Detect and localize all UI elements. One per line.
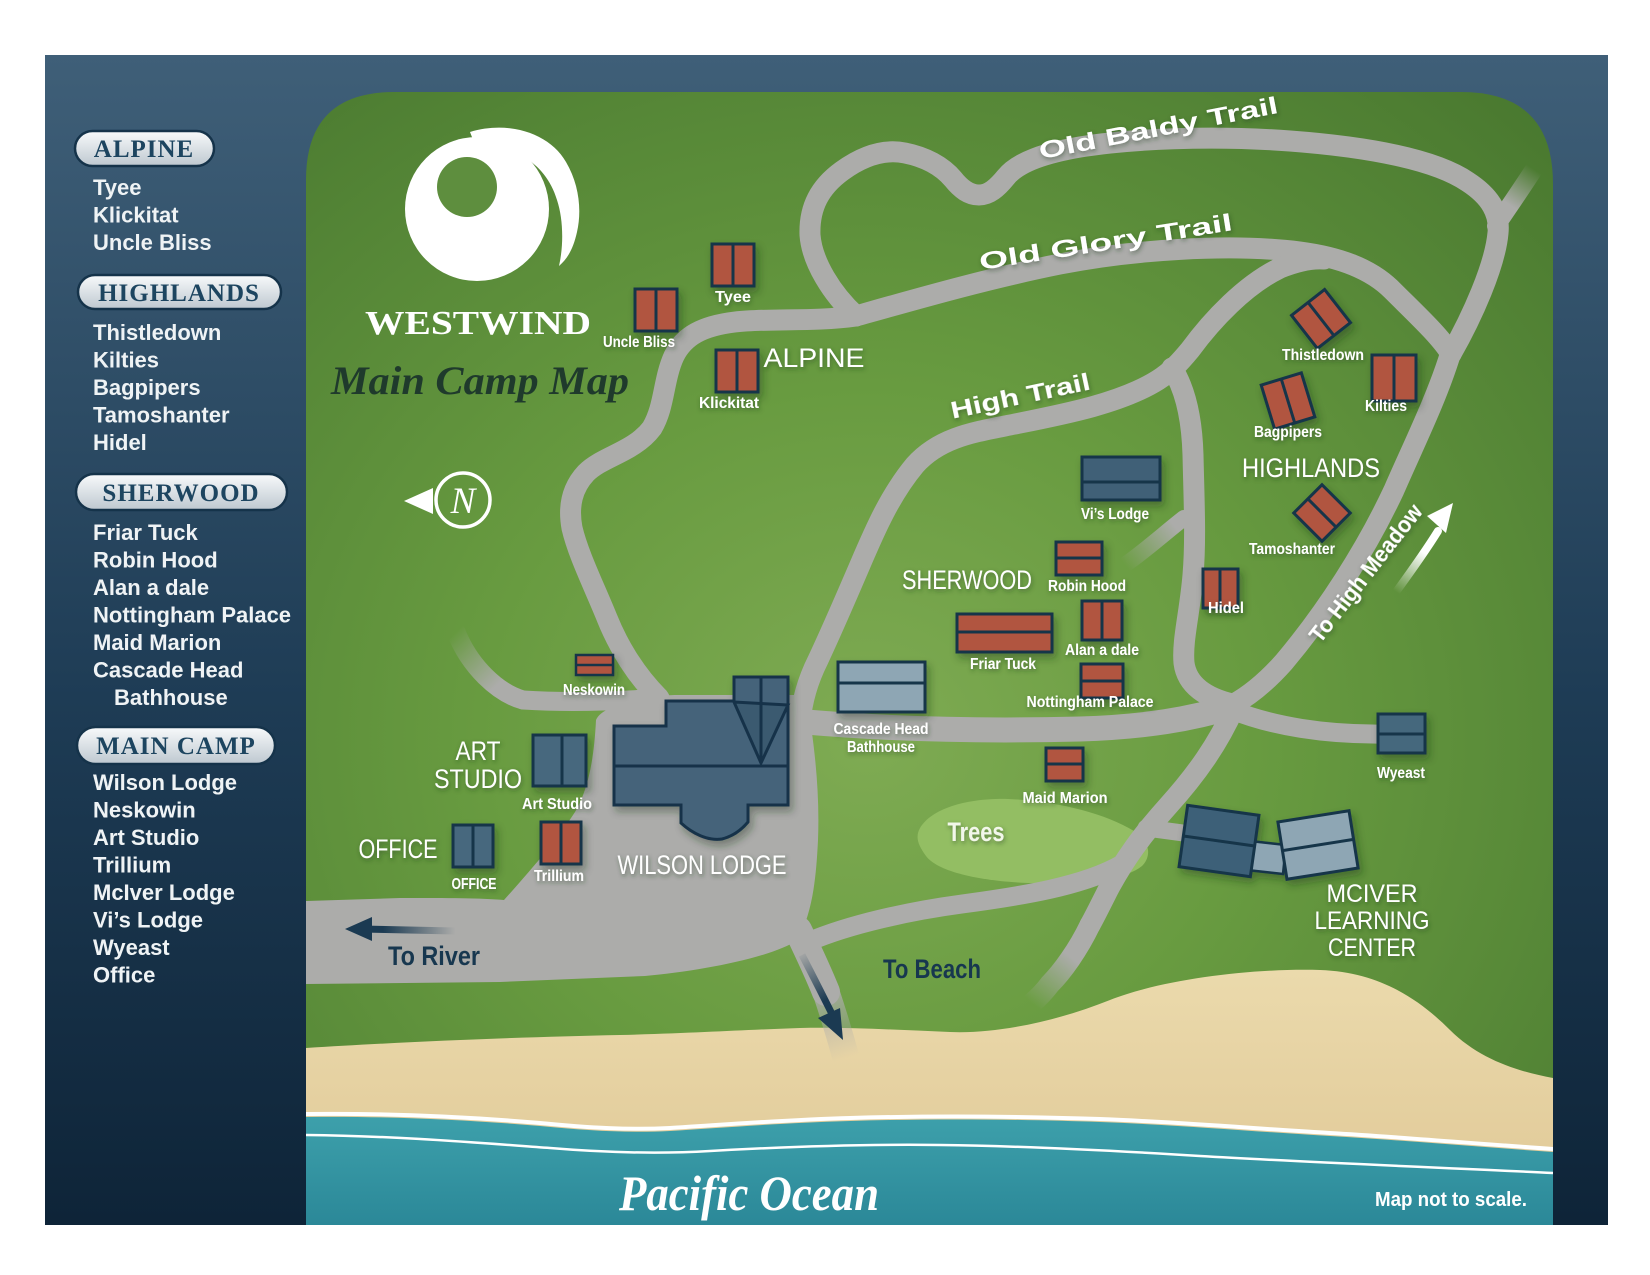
svg-text:OFFICE: OFFICE [452,876,497,893]
svg-text:Alan a dale: Alan a dale [1065,642,1139,659]
svg-text:MAIN CAMP: MAIN CAMP [96,733,256,760]
svg-text:ALPINE: ALPINE [764,343,865,373]
svg-text:SHERWOOD: SHERWOOD [902,565,1032,595]
svg-text:Neskowin: Neskowin [563,682,625,699]
svg-text:Bagpipers: Bagpipers [93,375,201,400]
svg-text:Trees: Trees [948,817,1005,847]
svg-text:HIGHLANDS: HIGHLANDS [1242,453,1380,483]
svg-text:Main Camp Map: Main Camp Map [330,358,629,403]
svg-text:Neskowin: Neskowin [93,798,196,823]
svg-text:Wyeast: Wyeast [1377,765,1426,782]
svg-text:Map not to scale.: Map not to scale. [1375,1189,1527,1211]
svg-text:Klickitat: Klickitat [93,203,179,228]
svg-text:Alan a dale: Alan a dale [93,575,209,600]
svg-text:Vi’s Lodge: Vi’s Lodge [1081,506,1149,523]
svg-text:Art Studio: Art Studio [522,796,592,813]
svg-text:HIGHLANDS: HIGHLANDS [98,280,260,307]
svg-text:To Beach: To Beach [883,954,981,984]
svg-text:Bagpipers: Bagpipers [1254,424,1322,441]
svg-text:WESTWIND: WESTWIND [365,305,591,342]
svg-text:Robin Hood: Robin Hood [93,548,218,573]
svg-text:Bathhouse: Bathhouse [847,739,915,756]
svg-text:Maid Marion: Maid Marion [1023,790,1108,807]
svg-text:SHERWOOD: SHERWOOD [102,480,259,507]
svg-text:Kilties: Kilties [1365,398,1407,415]
svg-text:Wyeast: Wyeast [93,935,170,960]
svg-text:Hidel: Hidel [1208,600,1244,617]
svg-text:Pacific Ocean: Pacific Ocean [618,1165,879,1221]
svg-text:MCIVER: MCIVER [1327,880,1418,908]
svg-text:Tyee: Tyee [715,289,751,306]
svg-text:Tamoshanter: Tamoshanter [1249,541,1335,558]
svg-text:STUDIO: STUDIO [434,764,522,794]
svg-text:Maid Marion: Maid Marion [93,630,221,655]
svg-text:Bathhouse: Bathhouse [114,685,228,710]
svg-text:Trillium: Trillium [534,868,584,885]
svg-text:LEARNING: LEARNING [1315,907,1430,935]
svg-text:McIver Lodge: McIver Lodge [93,880,235,905]
svg-text:Hidel: Hidel [93,430,147,455]
svg-text:Art Studio: Art Studio [93,825,199,850]
svg-text:Friar Tuck: Friar Tuck [93,520,199,545]
svg-text:OFFICE: OFFICE [359,834,438,864]
svg-text:Wilson Lodge: Wilson Lodge [93,770,237,795]
svg-text:Trillium: Trillium [93,853,171,878]
svg-text:Cascade Head: Cascade Head [93,658,243,683]
svg-text:Nottingham Palace: Nottingham Palace [93,603,291,628]
svg-text:Tyee: Tyee [93,175,142,200]
svg-text:Office: Office [93,963,155,988]
svg-text:Robin Hood: Robin Hood [1048,578,1126,595]
svg-text:Friar Tuck: Friar Tuck [970,656,1036,673]
svg-text:To River: To River [388,941,480,971]
svg-text:Thistledown: Thistledown [1282,347,1364,364]
svg-text:Nottingham Palace: Nottingham Palace [1027,694,1154,711]
svg-text:WILSON LODGE: WILSON LODGE [618,850,787,880]
svg-text:Uncle Bliss: Uncle Bliss [93,230,212,255]
svg-text:ART: ART [456,736,501,766]
svg-text:Kilties: Kilties [93,348,159,373]
svg-text:Thistledown: Thistledown [93,320,221,345]
svg-text:Cascade Head: Cascade Head [834,721,929,738]
svg-text:ALPINE: ALPINE [94,136,194,163]
svg-text:Uncle Bliss: Uncle Bliss [603,334,675,351]
svg-text:N: N [450,481,478,522]
svg-text:Klickitat: Klickitat [699,395,760,412]
svg-text:Tamoshanter: Tamoshanter [93,403,230,428]
svg-text:Vi’s Lodge: Vi’s Lodge [93,908,203,933]
svg-text:CENTER: CENTER [1328,934,1416,962]
